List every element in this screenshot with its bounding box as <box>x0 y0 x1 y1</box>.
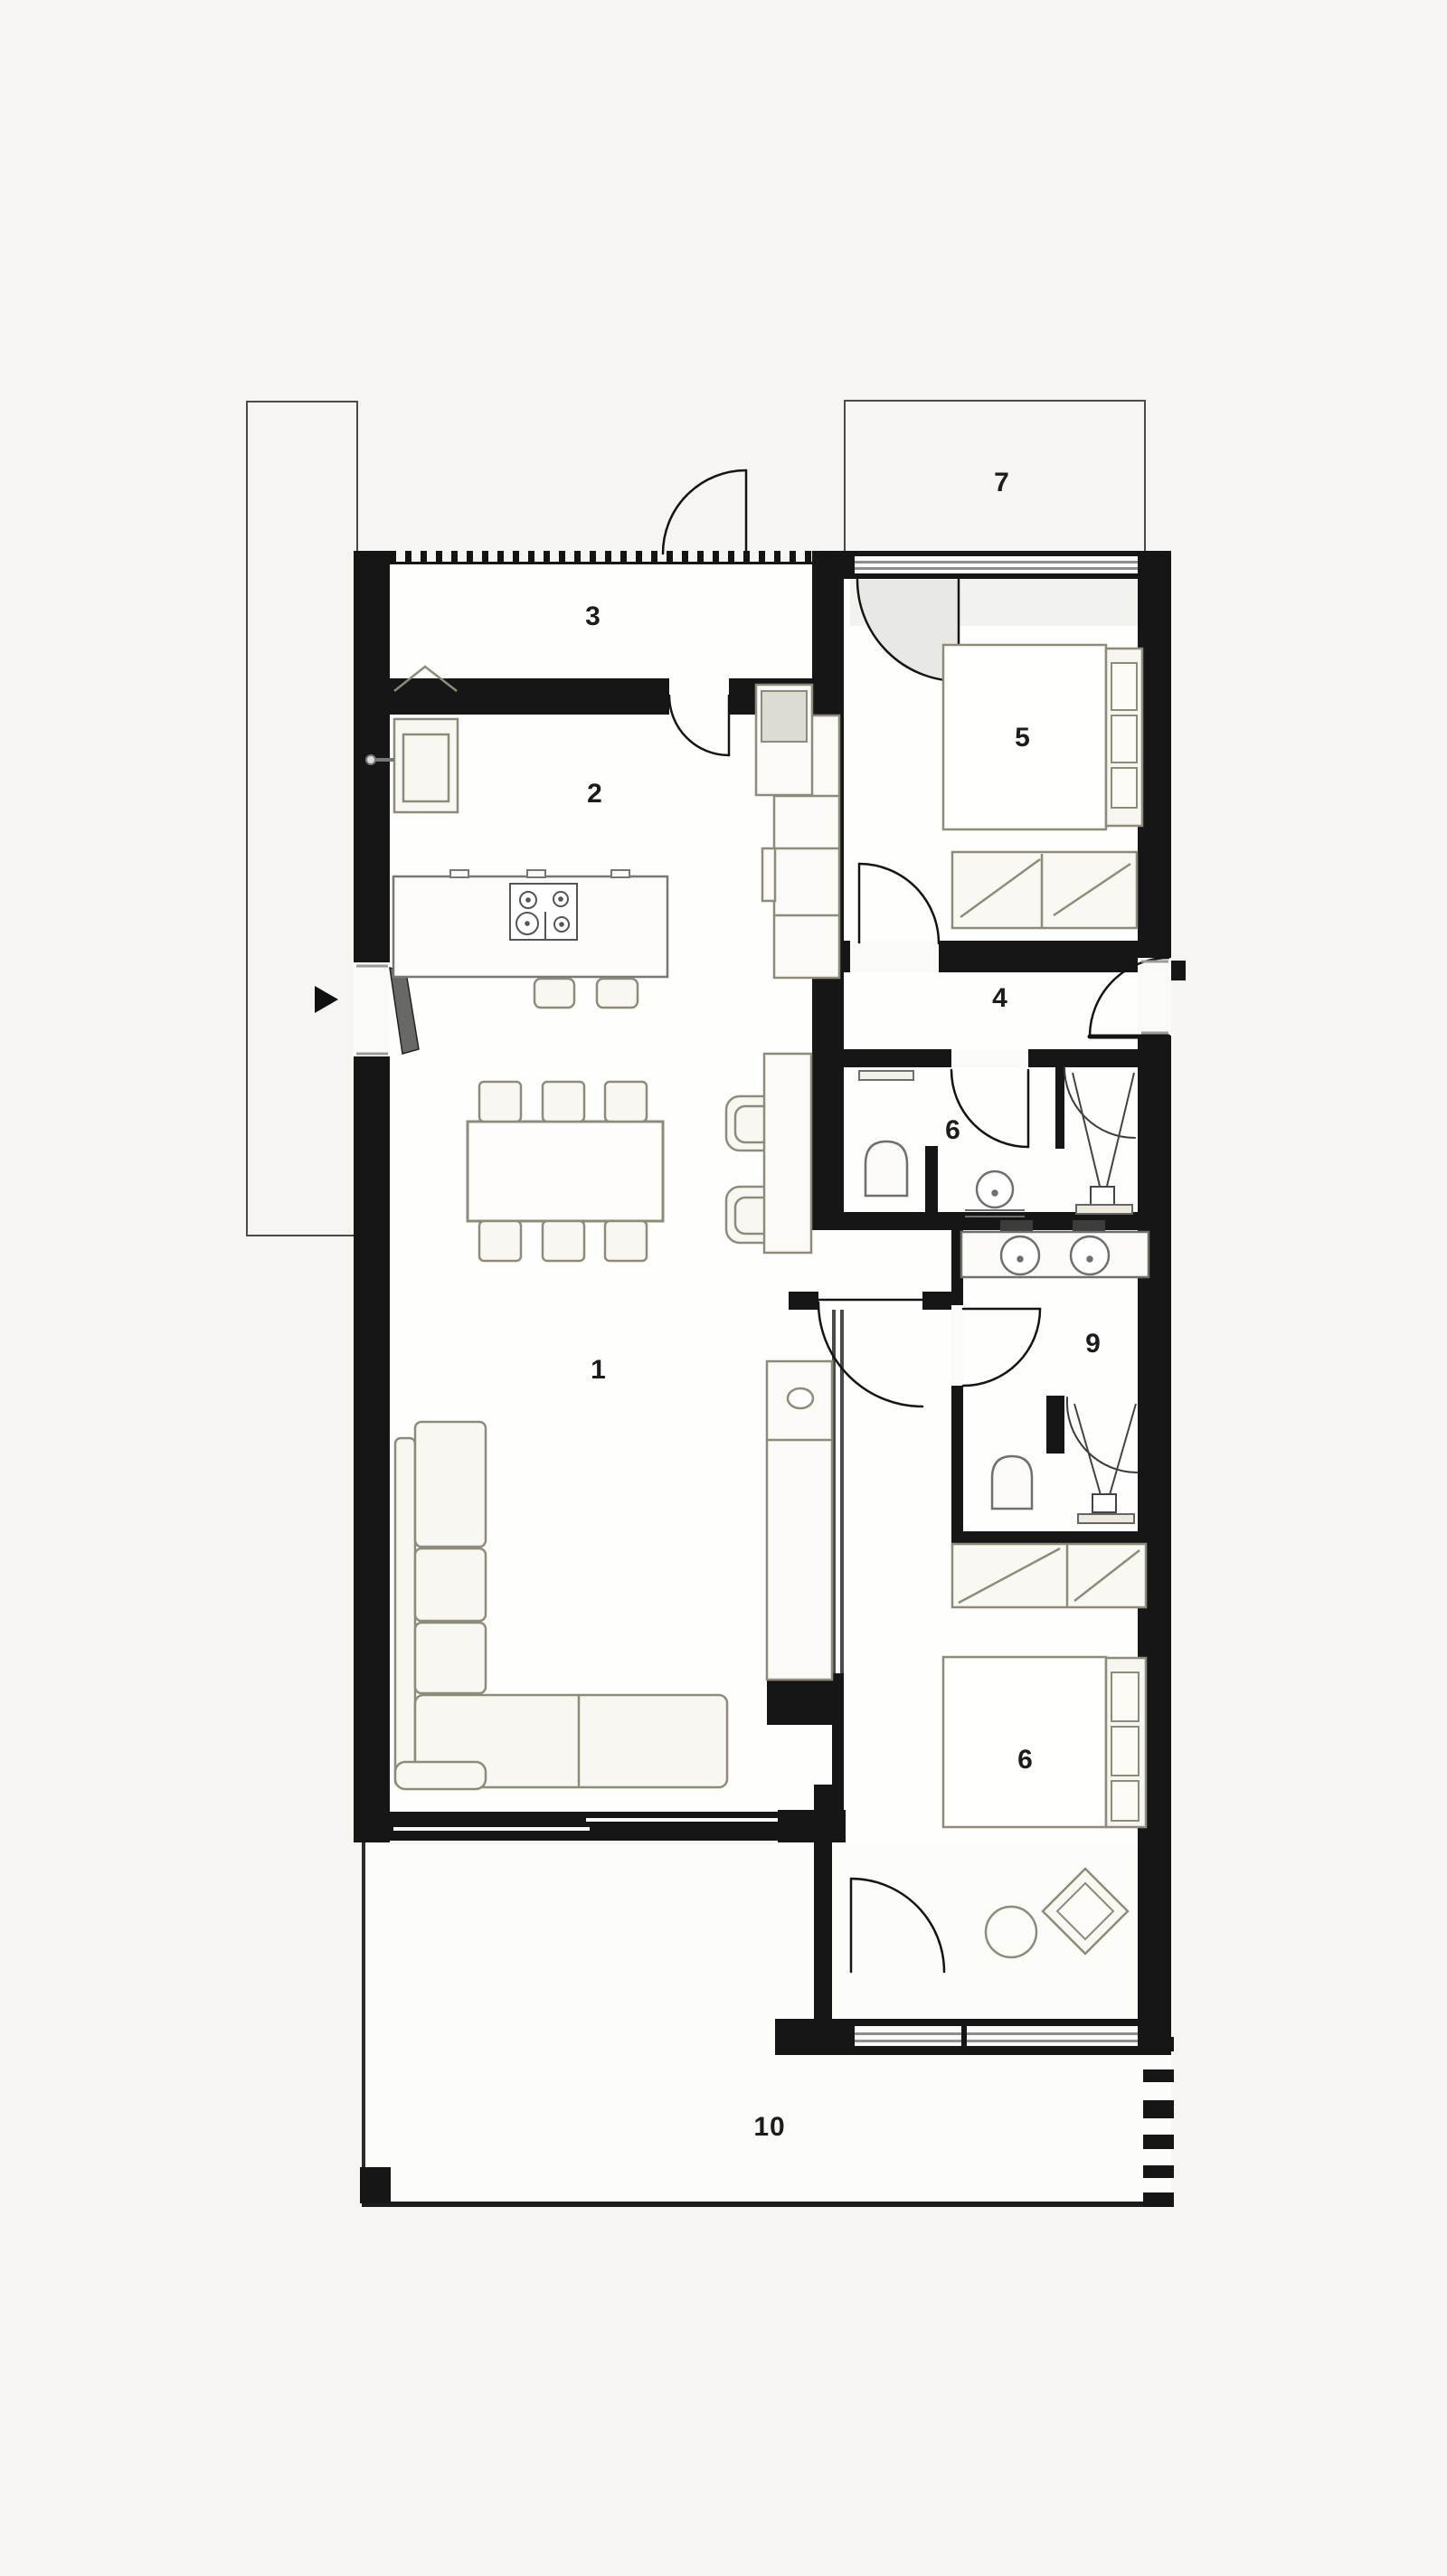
washbasin1-icon <box>977 1171 1013 1207</box>
toilet1-icon <box>865 1141 907 1196</box>
corridor-door <box>818 1300 922 1406</box>
bedroom2-furniture <box>943 1544 1146 1957</box>
bed1-pillows-icon <box>1111 663 1137 808</box>
room-label-patio: 7 <box>994 468 1010 498</box>
room-label-bathroom-2: 9 <box>1085 1329 1102 1359</box>
entry-porch-door <box>663 470 746 554</box>
shower1-glass-door <box>1064 1067 1135 1138</box>
room-label-living-room: 1 <box>591 1355 607 1386</box>
bedroom1-hall-door <box>859 864 939 943</box>
room-label-terrace: 10 <box>753 2112 785 2143</box>
room-label-bedroom-1: 5 <box>1015 723 1031 753</box>
room-label-bedroom-2: 6 <box>1017 1745 1034 1776</box>
plan-linework <box>0 0 1447 2576</box>
kitchen-furniture <box>365 667 839 1008</box>
cooktop-icon <box>510 884 577 940</box>
bathroom1-fixtures <box>859 1071 1134 1217</box>
bathroom2-door <box>963 1309 1040 1386</box>
console-counter-icon <box>767 1361 832 1680</box>
bar-stools-icon <box>534 979 638 1008</box>
double-vanity-icon <box>961 1232 1149 1277</box>
bedroom2-door <box>851 1879 944 1972</box>
shower1-icon <box>1073 1073 1134 1214</box>
wardrobe2-icon <box>952 1544 1146 1607</box>
bathroom2-fixtures <box>992 1404 1136 1523</box>
accent-chair-icon <box>1043 1869 1128 1954</box>
bedroom1-furniture <box>943 645 1142 928</box>
round-rug-icon <box>986 1907 1036 1957</box>
towel-rail-icon <box>859 1071 913 1080</box>
sideboard-icon <box>764 1054 811 1253</box>
entry-closet-icon <box>756 685 812 795</box>
toilet2-icon <box>992 1456 1032 1509</box>
floor-plan-canvas: 12345676910 <box>0 0 1447 2576</box>
bathroom1-door <box>951 1070 1028 1147</box>
bed2-mattress-icon <box>943 1657 1106 1827</box>
sectional-sofa-icon <box>395 1422 727 1789</box>
hall-exterior-door <box>1090 958 1168 1037</box>
dining-table-icon <box>468 1122 663 1221</box>
hall-door-threshold <box>1141 961 1168 1033</box>
sink-cabinet-icon <box>365 667 458 812</box>
entry-arrow-icon <box>315 986 338 1013</box>
entry-to-kitchen-door <box>669 696 729 755</box>
bed2-pillows-icon <box>1111 1672 1139 1821</box>
room-label-kitchen: 2 <box>587 779 603 810</box>
room-label-hallway: 4 <box>992 983 1008 1014</box>
room-label-bathroom-1: 6 <box>945 1115 961 1146</box>
main-entry-door <box>315 966 419 1054</box>
dining-set <box>468 1054 811 1261</box>
room-label-entry-hall: 3 <box>585 601 601 632</box>
dresser1-icon <box>952 852 1137 928</box>
shower2-icon <box>1074 1404 1136 1523</box>
